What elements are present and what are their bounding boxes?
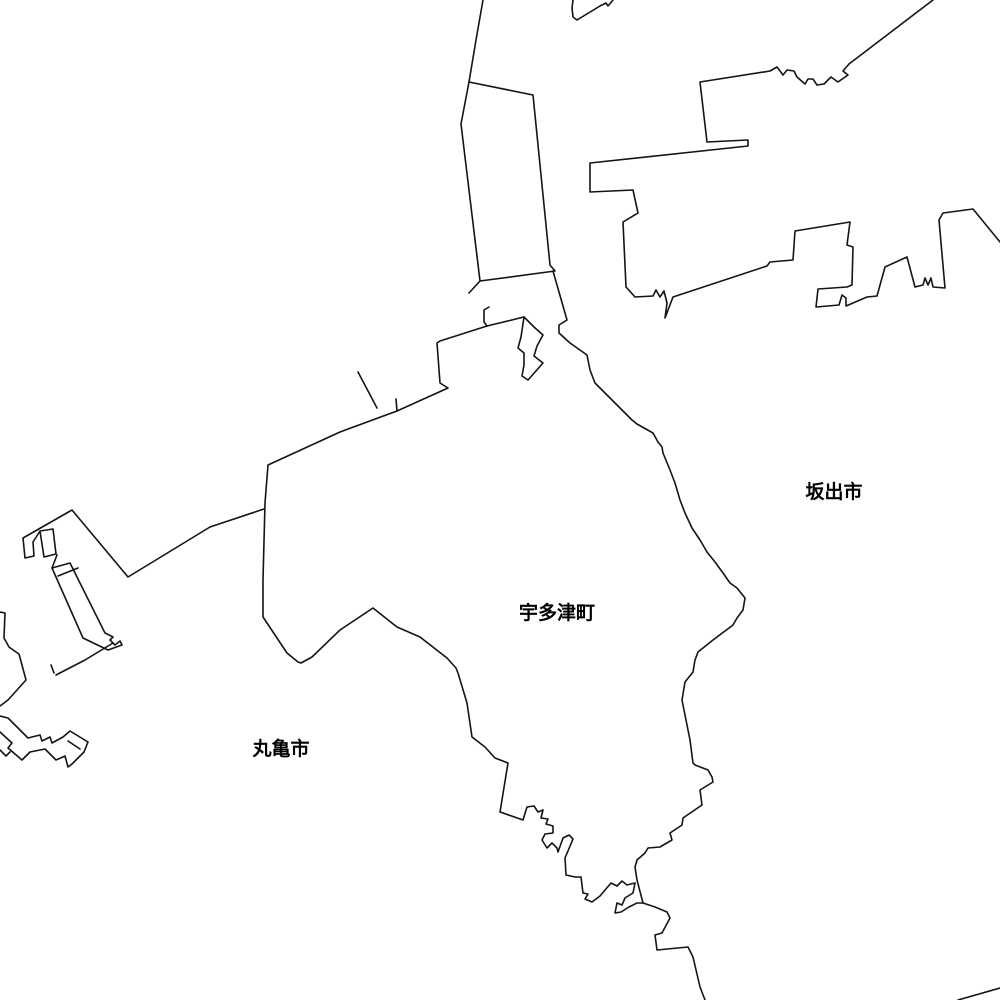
boundary-shore-slit-line [68, 741, 80, 749]
boundary-breakwater-spur-b [396, 399, 397, 411]
boundary-breakwater-spur-a [358, 372, 377, 408]
boundary-harbor-tick [484, 307, 489, 326]
label-sakaide: 坂出市 [805, 480, 862, 503]
boundary-reclaimed-island [461, 82, 555, 281]
label-utazu: 宇多津町 [519, 601, 595, 624]
label-marugame: 丸亀市 [251, 737, 309, 760]
boundary-marugame-shore-south [0, 716, 88, 767]
boundary-shore-check-mark [0, 750, 10, 756]
boundary-north-coast-spur [469, 0, 483, 82]
boundary-marugame-pier [52, 563, 122, 650]
map-canvas: 坂出市宇多津町丸亀市 [0, 0, 1000, 1000]
boundary-marugame-shore-north [0, 612, 26, 706]
boundary-sakaide-north-coast [590, 0, 1000, 318]
boundary-island-breakwater-spur [469, 281, 480, 293]
boundary-pier-foot-spike [51, 665, 54, 673]
boundary-utazu-east-boundary [553, 271, 745, 1000]
municipal-boundary-map: 坂出市宇多津町丸亀市 [0, 0, 1000, 1000]
boundary-pier-foot-diagonal [56, 643, 113, 675]
boundary-harbor-ridge [487, 317, 524, 326]
boundary-bottom-right-corner-line [958, 988, 1000, 1000]
boundary-top-center-islet [572, 0, 613, 20]
boundary-harbor-pond [518, 317, 543, 380]
